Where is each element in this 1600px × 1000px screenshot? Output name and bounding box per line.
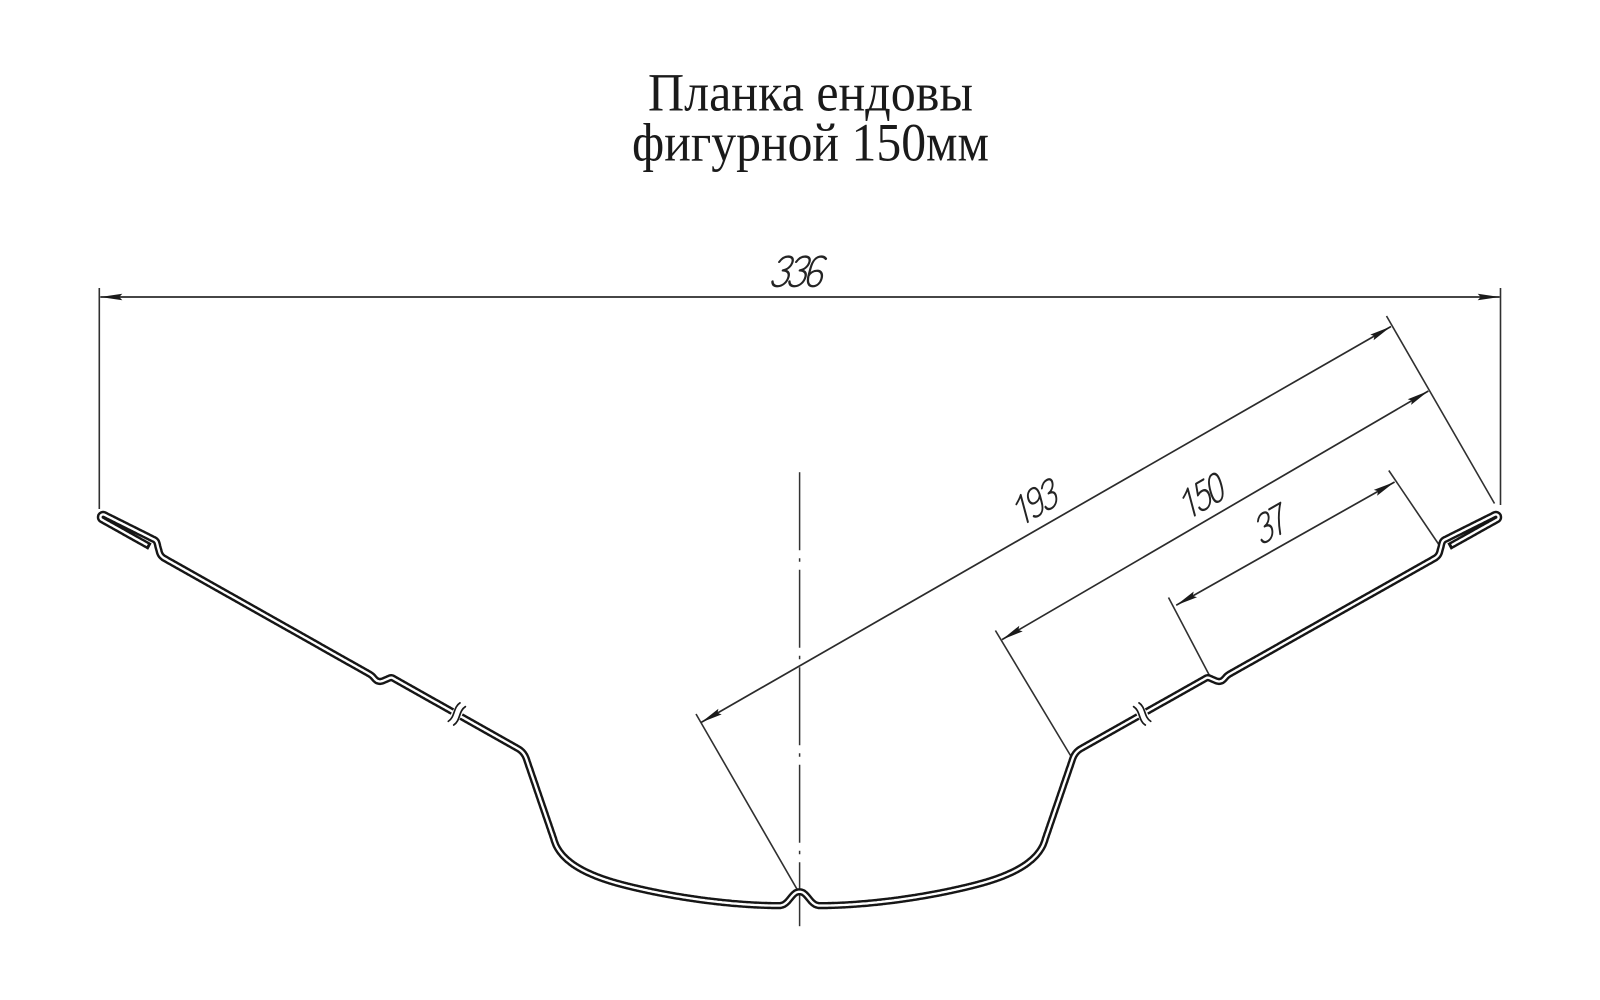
svg-text:фигурной 150мм: фигурной 150мм (632, 112, 989, 172)
